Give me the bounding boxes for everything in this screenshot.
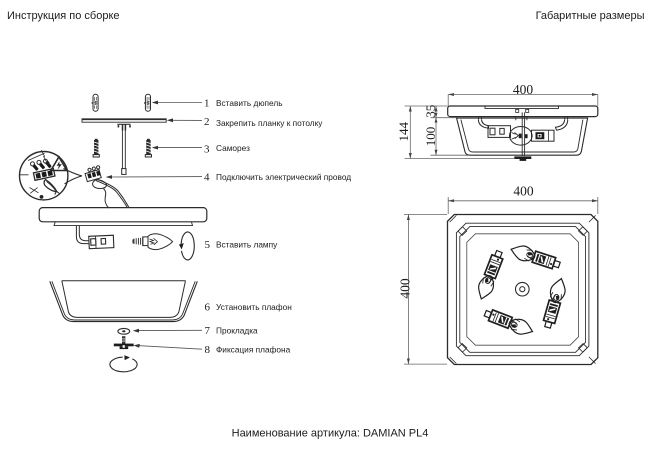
svg-text:Подключить электрический прово: Подключить электрический провод — [216, 172, 351, 182]
svg-text:2: 2 — [204, 116, 210, 128]
svg-text:400: 400 — [398, 278, 413, 299]
svg-text:400: 400 — [513, 184, 534, 199]
svg-text:Закрепить планку к потолку: Закрепить планку к потолку — [216, 118, 323, 128]
svg-text:Фиксация плафона: Фиксация плафона — [216, 345, 291, 355]
svg-text:Наименование артикула: DAMIAN: Наименование артикула: DAMIAN PL4 — [232, 428, 429, 440]
svg-text:Инструкция по сборке: Инструкция по сборке — [7, 10, 120, 22]
svg-text:7: 7 — [205, 325, 211, 337]
svg-text:1: 1 — [204, 97, 210, 109]
svg-text:Саморез: Саморез — [216, 143, 250, 153]
svg-text:3: 3 — [204, 143, 210, 155]
svg-text:4: 4 — [204, 171, 210, 183]
svg-text:35: 35 — [423, 105, 438, 118]
svg-text:Прокладка: Прокладка — [216, 326, 258, 336]
svg-text:144: 144 — [396, 122, 411, 142]
svg-text:Вставить дюпель: Вставить дюпель — [216, 98, 283, 108]
svg-text:Установить плафон: Установить плафон — [216, 302, 292, 312]
svg-text:Вставить лампу: Вставить лампу — [216, 239, 278, 249]
svg-text:5: 5 — [205, 239, 211, 251]
svg-text:400: 400 — [513, 82, 534, 97]
svg-text:100: 100 — [423, 127, 438, 147]
svg-text:8: 8 — [205, 344, 211, 356]
svg-text:Габаритные размеры: Габаритные размеры — [536, 10, 645, 22]
svg-text:6: 6 — [205, 301, 211, 313]
